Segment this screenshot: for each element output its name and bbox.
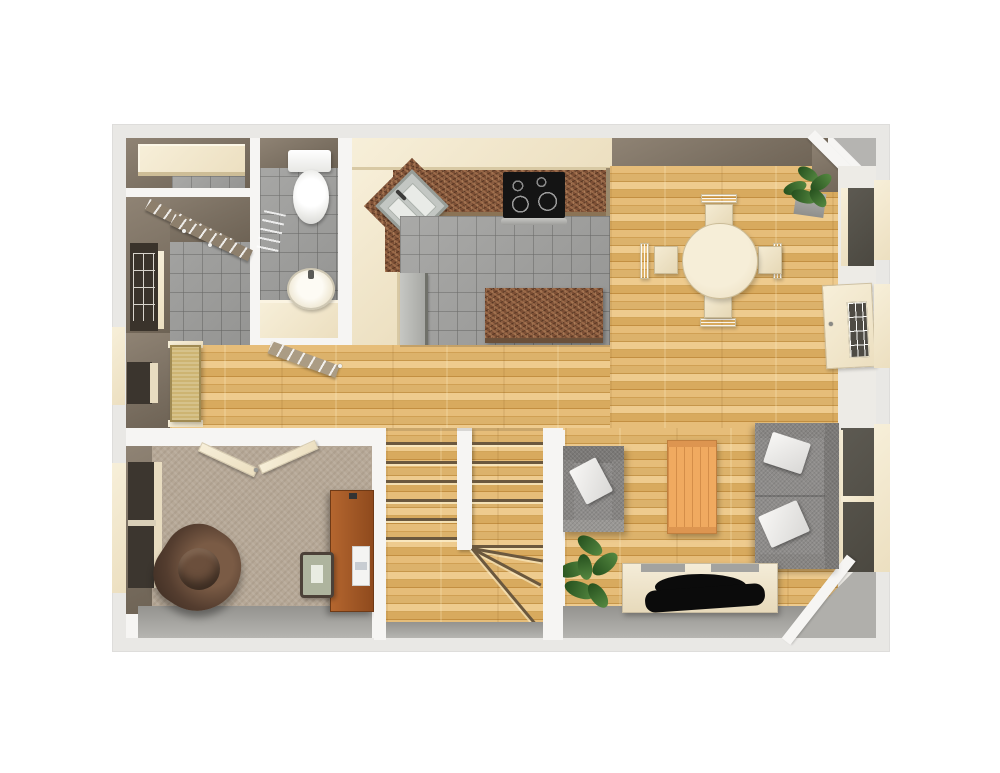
stair-tread	[386, 499, 457, 502]
stair-tread	[472, 461, 543, 464]
stairs-wall-bottom	[386, 622, 543, 638]
stairs-top-edge	[386, 428, 543, 431]
sofa	[755, 423, 839, 569]
door-trim	[158, 251, 164, 329]
stove-cooktop	[503, 172, 565, 218]
armchair-arm	[612, 460, 624, 522]
front-door	[130, 243, 158, 331]
dining-chair-back	[701, 194, 737, 203]
laptop	[352, 546, 370, 586]
dining-table	[682, 223, 758, 299]
sofa-back	[824, 423, 839, 569]
dining-plant	[783, 164, 833, 222]
stove-handle	[501, 218, 567, 225]
entry-bench	[170, 345, 201, 422]
closet-shelf	[138, 144, 245, 176]
office-wall-top	[126, 428, 374, 446]
dining-wall-top	[612, 138, 828, 166]
door-knob	[829, 322, 833, 326]
stair-tread	[472, 545, 543, 548]
dining-chair	[654, 246, 678, 274]
kitchen-upper-counter	[352, 138, 612, 170]
dining-chair	[758, 246, 782, 274]
exterior-window-sill	[112, 327, 125, 405]
exterior-window-sill	[874, 284, 890, 368]
stair-tread	[386, 461, 457, 464]
console-slot	[641, 564, 685, 572]
laptop-keys	[355, 562, 367, 570]
exterior-window-sill	[874, 180, 890, 260]
desk-lamp	[349, 493, 357, 499]
stairs-wall-left	[374, 428, 386, 640]
toilet-bowl	[293, 170, 329, 224]
stair-tread	[472, 480, 543, 483]
stair-tread	[472, 442, 543, 445]
sink-faucet	[308, 270, 314, 279]
coffee-table-end	[668, 527, 716, 533]
living-plant	[556, 532, 622, 612]
sofa-seam	[755, 495, 825, 497]
sofa-arm	[759, 423, 825, 438]
kitchen-island	[485, 288, 603, 343]
refrigerator	[400, 273, 428, 348]
stair-tread	[472, 499, 543, 502]
armchair-front	[562, 520, 624, 532]
coffee-table-end	[668, 441, 716, 447]
floorplan-page	[0, 0, 1000, 773]
console-slot	[711, 564, 759, 572]
exterior-window-sill	[112, 463, 126, 593]
floor-transition	[400, 345, 610, 347]
stair-tread	[386, 518, 457, 521]
stairs-center-wall	[457, 428, 472, 550]
door-glass-grid	[847, 301, 870, 358]
dining-window	[846, 188, 874, 266]
armchair	[562, 446, 624, 532]
stair-tread	[386, 480, 457, 483]
window-trim	[841, 188, 848, 266]
door-knob	[208, 243, 212, 247]
floorplan-render	[112, 124, 890, 652]
closet-floor	[172, 176, 245, 188]
exterior-window-sill	[874, 424, 890, 572]
window-trim	[150, 363, 158, 403]
plant-leaf	[576, 553, 594, 581]
dining-chair-back	[640, 243, 649, 279]
window-crossbar	[841, 496, 874, 502]
door-knob	[182, 229, 186, 233]
door-knob	[338, 364, 342, 368]
stair-tread	[386, 537, 457, 540]
hallway-floor	[170, 345, 610, 430]
dining-chair-back	[700, 318, 736, 327]
entry-sidelight	[127, 362, 152, 404]
toilet-tank	[288, 150, 331, 172]
office-armchair	[158, 526, 240, 612]
stairs-wall-right	[543, 428, 563, 640]
front-door-glass	[133, 253, 155, 321]
back-door	[822, 283, 876, 370]
desk-chair	[300, 552, 334, 598]
window-crossbar	[128, 520, 156, 526]
desk-chair-cushion	[311, 565, 323, 583]
coffee-table	[667, 440, 717, 534]
door-knob	[254, 468, 258, 472]
stair-tread	[386, 442, 457, 445]
